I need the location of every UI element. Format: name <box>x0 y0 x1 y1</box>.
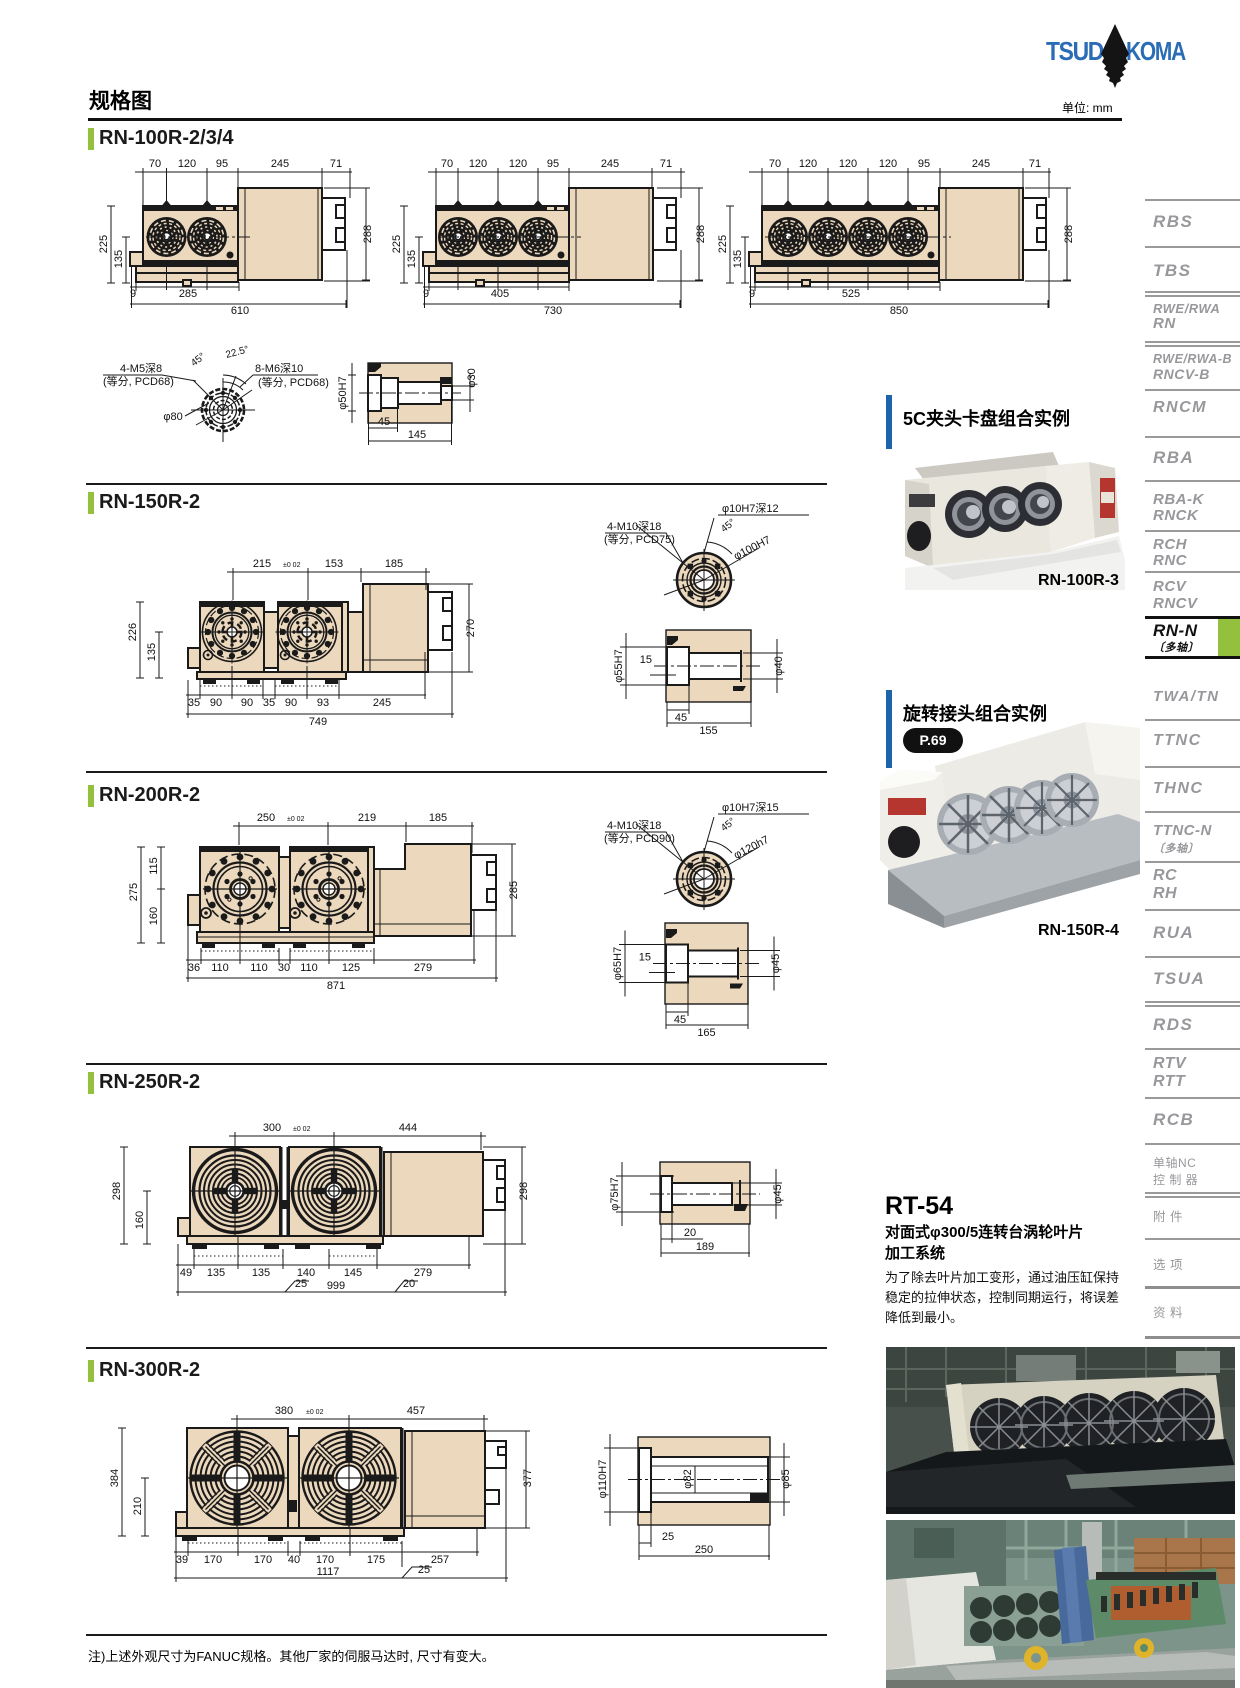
svg-text:φ82: φ82 <box>682 1469 694 1488</box>
svg-text:185: 185 <box>429 812 447 824</box>
svg-text:285: 285 <box>179 288 197 300</box>
svg-text:245: 245 <box>373 697 391 709</box>
svg-text:φ85: φ85 <box>780 1469 792 1488</box>
svg-text:95: 95 <box>918 158 930 170</box>
svg-text:288: 288 <box>362 225 374 243</box>
svg-text:25: 25 <box>662 1531 674 1543</box>
svg-text:257: 257 <box>431 1554 449 1566</box>
svg-text:20: 20 <box>403 1278 415 1290</box>
svg-text:405: 405 <box>491 288 509 300</box>
svg-text:250: 250 <box>257 812 275 824</box>
svg-text:±0 02: ±0 02 <box>306 1409 324 1416</box>
svg-text:377: 377 <box>522 1469 534 1487</box>
svg-text:φ75H7: φ75H7 <box>609 1177 621 1210</box>
svg-text:125: 125 <box>342 962 360 974</box>
svg-text:170: 170 <box>316 1554 334 1566</box>
svg-text:φ30: φ30 <box>466 368 478 387</box>
svg-text:135: 135 <box>732 250 744 268</box>
svg-text:298: 298 <box>518 1182 530 1200</box>
svg-text:90: 90 <box>210 697 222 709</box>
svg-text:219: 219 <box>358 812 376 824</box>
svg-text:999: 999 <box>327 1280 345 1292</box>
svg-text:288: 288 <box>1063 225 1075 243</box>
svg-text:49: 49 <box>180 1267 192 1279</box>
svg-text:4-M10深18: 4-M10深18 <box>607 819 661 832</box>
svg-text:270: 270 <box>465 619 477 637</box>
svg-text:70: 70 <box>441 158 453 170</box>
svg-text:185: 185 <box>385 558 403 570</box>
svg-text:120: 120 <box>509 158 527 170</box>
svg-text:4-M5深8: 4-M5深8 <box>120 362 162 375</box>
svg-text:90: 90 <box>285 697 297 709</box>
svg-text:(等分, PCD68): (等分, PCD68) <box>258 375 329 389</box>
svg-text:φ45: φ45 <box>772 1184 784 1203</box>
svg-text:39: 39 <box>176 1554 188 1566</box>
svg-text:15: 15 <box>640 654 652 666</box>
svg-text:30: 30 <box>278 962 290 974</box>
svg-text:70: 70 <box>769 158 781 170</box>
svg-text:71: 71 <box>330 158 342 170</box>
svg-text:25: 25 <box>295 1278 307 1290</box>
svg-text:110: 110 <box>211 962 229 974</box>
svg-text:275: 275 <box>128 883 140 901</box>
svg-text:871: 871 <box>327 980 345 992</box>
svg-text:45°: 45° <box>719 517 738 535</box>
svg-text:226: 226 <box>127 623 139 641</box>
svg-text:153: 153 <box>325 558 343 570</box>
svg-text:525: 525 <box>842 288 860 300</box>
svg-text:120: 120 <box>839 158 857 170</box>
svg-text:298: 298 <box>111 1182 123 1200</box>
svg-text:φ40: φ40 <box>773 656 785 675</box>
svg-text:225: 225 <box>391 235 403 253</box>
svg-text:40: 40 <box>288 1554 300 1566</box>
svg-text:45: 45 <box>675 712 687 724</box>
svg-text:45: 45 <box>378 416 390 428</box>
svg-text:444: 444 <box>399 1122 417 1134</box>
svg-text:225: 225 <box>98 235 110 253</box>
svg-text:245: 245 <box>972 158 990 170</box>
svg-text:9: 9 <box>423 288 429 300</box>
svg-text:φ45: φ45 <box>770 954 782 973</box>
svg-text:288: 288 <box>695 225 707 243</box>
svg-text:145: 145 <box>344 1267 362 1279</box>
svg-text:850: 850 <box>890 305 908 317</box>
svg-text:145: 145 <box>408 429 426 441</box>
svg-text:155: 155 <box>699 725 717 737</box>
svg-text:210: 210 <box>132 1497 144 1515</box>
svg-text:71: 71 <box>660 158 672 170</box>
svg-text:175: 175 <box>367 1554 385 1566</box>
svg-text:φ10H7深15: φ10H7深15 <box>722 801 779 814</box>
svg-text:70: 70 <box>149 158 161 170</box>
svg-text:35: 35 <box>188 697 200 709</box>
svg-text:457: 457 <box>407 1405 425 1417</box>
svg-text:φ100H7: φ100H7 <box>732 534 773 563</box>
svg-text:(等分, PCD75): (等分, PCD75) <box>604 532 675 546</box>
svg-text:215: 215 <box>253 558 271 570</box>
svg-text:20: 20 <box>684 1227 696 1239</box>
svg-text:φ50H7: φ50H7 <box>337 376 349 409</box>
svg-text:170: 170 <box>254 1554 272 1566</box>
svg-text:45°: 45° <box>189 351 208 369</box>
svg-text:35: 35 <box>263 697 275 709</box>
svg-text:189: 189 <box>696 1241 714 1253</box>
svg-text:120: 120 <box>178 158 196 170</box>
svg-text:φ120h7: φ120h7 <box>732 834 771 862</box>
svg-text:285: 285 <box>508 881 520 899</box>
svg-text:95: 95 <box>216 158 228 170</box>
svg-text:165: 165 <box>697 1027 715 1039</box>
svg-text:135: 135 <box>252 1267 270 1279</box>
svg-text:135: 135 <box>113 250 125 268</box>
svg-text:749: 749 <box>309 716 327 728</box>
svg-text:45: 45 <box>674 1014 686 1026</box>
svg-text:36: 36 <box>188 962 200 974</box>
svg-text:95: 95 <box>547 158 559 170</box>
svg-text:(等分, PCD68): (等分, PCD68) <box>103 374 174 388</box>
svg-text:300: 300 <box>263 1122 281 1134</box>
svg-text:(等分, PCD90): (等分, PCD90) <box>604 831 675 845</box>
svg-text:279: 279 <box>414 962 432 974</box>
svg-text:90: 90 <box>241 697 253 709</box>
svg-text:120: 120 <box>799 158 817 170</box>
svg-text:8-M6深10: 8-M6深10 <box>255 362 303 375</box>
svg-text:160: 160 <box>134 1211 146 1229</box>
svg-text:±0 02: ±0 02 <box>287 816 305 823</box>
svg-text:245: 245 <box>601 158 619 170</box>
svg-text:120: 120 <box>469 158 487 170</box>
svg-text:384: 384 <box>109 1469 121 1487</box>
svg-text:22.5°: 22.5° <box>225 344 251 361</box>
svg-text:71: 71 <box>1029 158 1041 170</box>
svg-text:φ10H7深12: φ10H7深12 <box>722 502 779 515</box>
svg-text:225: 225 <box>717 235 729 253</box>
svg-text:160: 160 <box>148 907 160 925</box>
svg-text:245: 245 <box>271 158 289 170</box>
svg-text:380: 380 <box>275 1405 293 1417</box>
svg-text:110: 110 <box>300 962 318 974</box>
svg-text:15: 15 <box>639 952 651 964</box>
svg-text:9: 9 <box>749 288 755 300</box>
svg-text:120: 120 <box>879 158 897 170</box>
svg-text:φ55H7: φ55H7 <box>613 649 625 682</box>
svg-text:φ65H7: φ65H7 <box>612 947 624 980</box>
svg-text:135: 135 <box>406 250 418 268</box>
svg-text:93: 93 <box>317 697 329 709</box>
svg-text:115: 115 <box>148 857 160 875</box>
svg-text:610: 610 <box>231 305 249 317</box>
svg-text:±0 02: ±0 02 <box>283 562 301 569</box>
svg-text:135: 135 <box>207 1267 225 1279</box>
svg-text:φ80: φ80 <box>163 411 182 423</box>
svg-text:170: 170 <box>204 1554 222 1566</box>
svg-text:25: 25 <box>418 1564 430 1576</box>
svg-text:135: 135 <box>146 643 158 661</box>
svg-text:250: 250 <box>695 1544 713 1556</box>
svg-text:279: 279 <box>414 1267 432 1279</box>
svg-text:1117: 1117 <box>317 1566 340 1578</box>
svg-text:φ110H7: φ110H7 <box>597 1460 609 1499</box>
svg-text:9: 9 <box>130 288 136 300</box>
svg-text:45°: 45° <box>719 816 738 834</box>
svg-text:±0 02: ±0 02 <box>293 1126 311 1133</box>
svg-text:110: 110 <box>250 962 268 974</box>
svg-text:4-M10深18: 4-M10深18 <box>607 520 661 533</box>
svg-text:730: 730 <box>544 305 562 317</box>
